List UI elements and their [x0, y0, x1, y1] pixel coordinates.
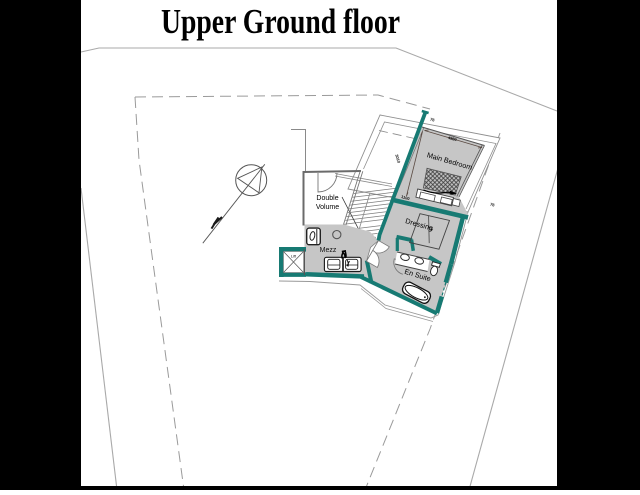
svg-text:Upper Ground floor: Upper Ground floor	[161, 2, 400, 41]
svg-text:Double: Double	[316, 195, 338, 202]
svg-text:Lift: Lift	[291, 254, 297, 259]
svg-text:Mezz: Mezz	[320, 247, 337, 254]
svg-text:Volume: Volume	[316, 204, 339, 211]
